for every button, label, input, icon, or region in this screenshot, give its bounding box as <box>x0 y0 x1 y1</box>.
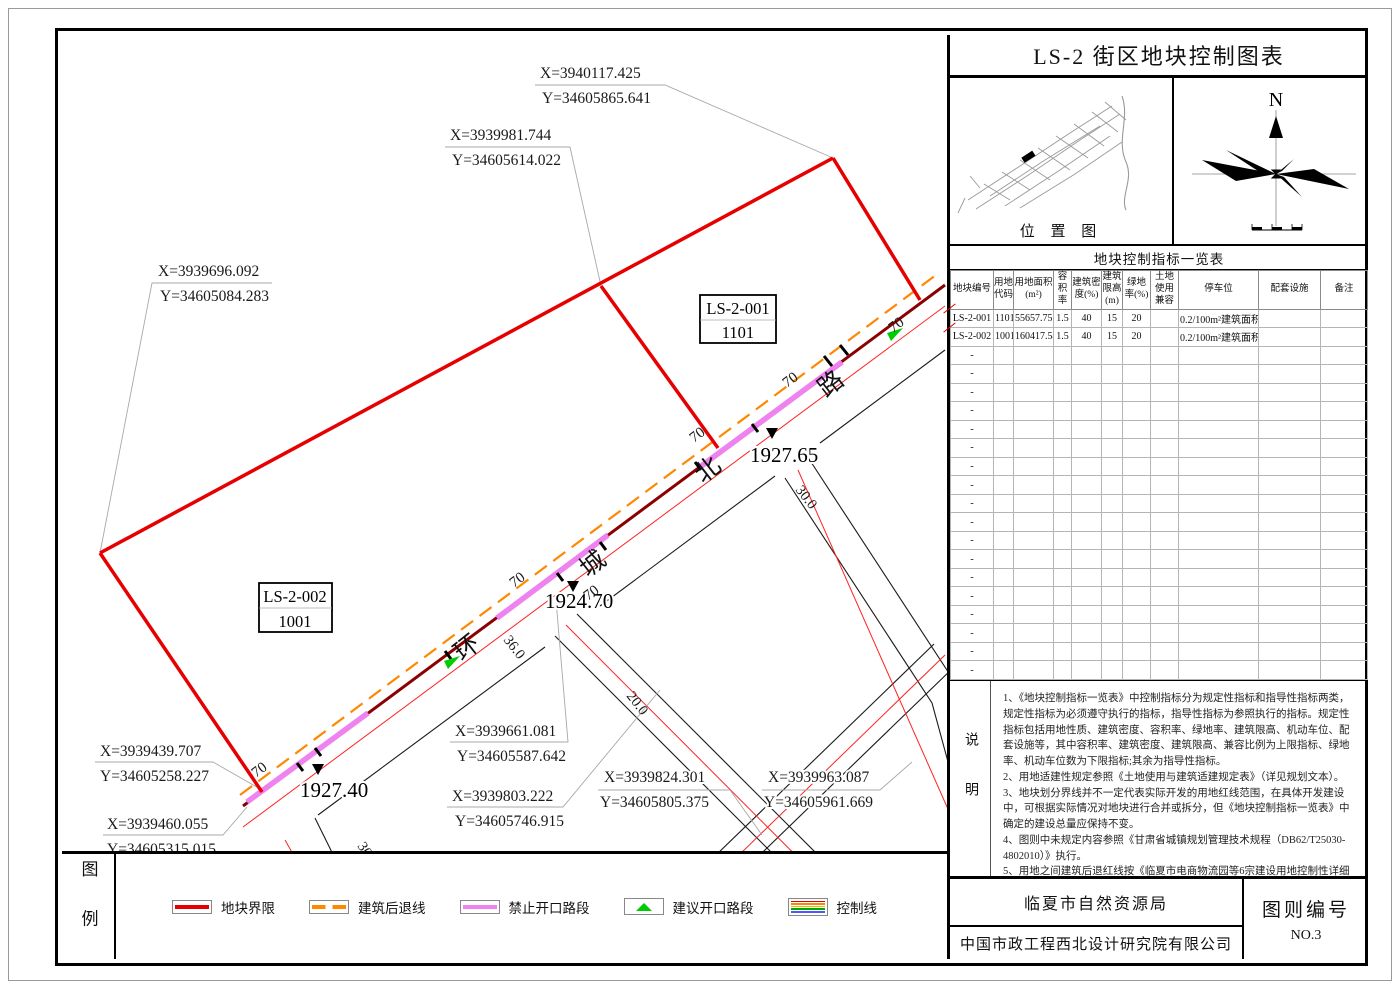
table-cell: - <box>951 457 994 476</box>
table-cell <box>994 531 1014 550</box>
table-cell <box>1102 439 1123 458</box>
table-row[interactable]: - <box>951 439 1368 458</box>
table-cell <box>1259 661 1321 680</box>
table-cell <box>994 457 1014 476</box>
table-cell <box>1072 346 1102 365</box>
table-cell <box>994 383 1014 402</box>
coordinate-label: Y=34605805.375 <box>600 794 709 811</box>
info-panel: LS-2 街区地块控制图表 <box>950 35 1368 959</box>
table-cell <box>1321 624 1368 643</box>
coordinate-label: X=3939981.744 <box>450 127 552 144</box>
table-cell <box>1072 550 1102 569</box>
table-header-cell: 停车位 <box>1179 271 1259 310</box>
table-cell <box>994 420 1014 439</box>
table-cell <box>1014 642 1054 661</box>
table-cell: LS-2-002 <box>951 328 994 347</box>
road-width-label: 30.0 <box>792 483 820 513</box>
coordinate-label: X=3939696.092 <box>158 263 259 280</box>
table-cell <box>1321 476 1368 495</box>
table-cell <box>1102 494 1123 513</box>
note-line: 4、图则中未规定内容参照《甘肃省城镇规划管理技术规程（DB62/T25030-4… <box>1003 833 1358 865</box>
table-row[interactable]: - <box>951 346 1368 365</box>
table-header-cell: 绿地率(%) <box>1123 271 1151 310</box>
table-cell: 1101 <box>994 309 1014 328</box>
coordinate-label: X=3939963.087 <box>768 769 870 786</box>
table-cell <box>1151 383 1179 402</box>
coordinate-label: Y=34605614.022 <box>452 152 561 169</box>
windrose-icon <box>1202 150 1349 197</box>
table-cell <box>1259 439 1321 458</box>
table-cell: 15 <box>1102 309 1123 328</box>
table-cell: LS-2-001 <box>951 309 994 328</box>
location-section: 位 置 图 N <box>950 78 1368 246</box>
table-cell <box>1014 494 1054 513</box>
legend-item-label: 禁止开口路段 <box>509 897 590 917</box>
table-cell <box>1179 661 1259 680</box>
notes-body: 1、《地块控制指标一览表》中控制指标分为规定性指标和指导性指标两类，规定性指标为… <box>991 681 1368 876</box>
table-cell: - <box>951 568 994 587</box>
parcel-boundaries <box>100 158 920 792</box>
table-cell <box>994 439 1014 458</box>
coordinate-label: Y=34605746.915 <box>455 813 564 830</box>
table-cell <box>1321 568 1368 587</box>
table-cell <box>1072 439 1102 458</box>
table-cell <box>1102 624 1123 643</box>
table-cell <box>1321 587 1368 606</box>
table-cell <box>1102 642 1123 661</box>
coordinate-label: Y=34605587.642 <box>457 748 566 765</box>
table-cell <box>1072 476 1102 495</box>
table-cell <box>1014 346 1054 365</box>
indicators-table-wrap: 地块编号用地代码用地面积(m²)容积率建筑密度(%)建筑限高(m)绿地率(%)土… <box>950 270 1368 681</box>
table-cell <box>1123 383 1151 402</box>
table-header-cell: 土地使用兼容 <box>1151 271 1179 310</box>
table-cell: - <box>951 605 994 624</box>
table-cell: - <box>951 476 994 495</box>
table-cell <box>1054 550 1072 569</box>
table-cell: - <box>951 642 994 661</box>
table-cell <box>994 494 1014 513</box>
table-row[interactable]: - <box>951 457 1368 476</box>
table-cell <box>1054 494 1072 513</box>
table-cell <box>1259 346 1321 365</box>
coordinate-label: Y=34605258.227 <box>100 768 209 785</box>
table-cell <box>1179 457 1259 476</box>
suggested-access-swatch-icon <box>624 898 664 915</box>
note-line: 3、地块划分界线并不一定代表实际开发的用地红线范围，在具体开发建设中，可根据实际… <box>1003 786 1358 833</box>
table-cell <box>1179 587 1259 606</box>
legend-item-label: 建议开口路段 <box>673 897 754 917</box>
table-cell <box>1259 402 1321 421</box>
table-cell: 1001 <box>994 328 1014 347</box>
table-cell: - <box>951 550 994 569</box>
coordinate-label: X=3939460.055 <box>107 816 209 833</box>
table-cell <box>1151 328 1179 347</box>
table-cell <box>1151 550 1179 569</box>
table-cell <box>994 402 1014 421</box>
table-cell <box>1151 661 1179 680</box>
table-cell <box>1014 439 1054 458</box>
table-cell <box>1321 383 1368 402</box>
table-cell <box>1259 309 1321 328</box>
table-cell <box>1054 568 1072 587</box>
legend-item-label: 建筑后退线 <box>358 897 426 917</box>
table-cell <box>1179 402 1259 421</box>
table-cell <box>1259 383 1321 402</box>
table-cell <box>1151 402 1179 421</box>
legend-item-suggested-access: 建议开口路段 <box>624 897 754 917</box>
table-row[interactable]: - <box>951 513 1368 532</box>
table-cell <box>1321 531 1368 550</box>
table-cell <box>1054 476 1072 495</box>
table-cell: - <box>951 587 994 606</box>
table-cell <box>1151 457 1179 476</box>
table-cell <box>1151 642 1179 661</box>
table-cell <box>1123 531 1151 550</box>
table-row[interactable]: - <box>951 365 1368 384</box>
table-cell <box>1321 550 1368 569</box>
table-cell <box>1179 476 1259 495</box>
table-cell <box>1123 624 1151 643</box>
table-cell <box>1321 642 1368 661</box>
table-cell <box>1321 513 1368 532</box>
table-cell <box>1123 587 1151 606</box>
table-cell: - <box>951 346 994 365</box>
table-row[interactable]: - <box>951 476 1368 495</box>
road-tick-marks <box>297 345 848 771</box>
table-cell: 20 <box>1123 328 1151 347</box>
table-cell <box>1072 420 1102 439</box>
sheet-frame: X=3940117.425 Y=34605865.641 X=3939981.7… <box>55 28 1368 966</box>
table-cell: 160417.54 <box>1014 328 1054 347</box>
table-cell <box>1179 642 1259 661</box>
table-cell <box>994 346 1014 365</box>
location-map-caption: 位 置 图 <box>950 220 1172 241</box>
north-label: N <box>1269 89 1283 111</box>
table-cell: - <box>951 494 994 513</box>
table-cell <box>1072 568 1102 587</box>
table-cell <box>1014 605 1054 624</box>
table-cell <box>1151 494 1179 513</box>
table-cell <box>1179 550 1259 569</box>
scale-bar <box>1252 224 1302 230</box>
table-cell <box>1151 439 1179 458</box>
table-cell <box>1123 457 1151 476</box>
coordinate-label: Y=34605084.283 <box>160 288 269 305</box>
table-cell: 55657.75 <box>1014 309 1054 328</box>
table-cell: - <box>951 513 994 532</box>
table-cell <box>1102 587 1123 606</box>
table-cell <box>1054 365 1072 384</box>
table-cell <box>994 605 1014 624</box>
table-cell <box>1072 365 1102 384</box>
table-cell <box>1321 328 1368 347</box>
road-name-char: 城 <box>575 546 611 583</box>
table-cell <box>1014 383 1054 402</box>
table-cell <box>1321 439 1368 458</box>
table-cell <box>994 513 1014 532</box>
table-cell <box>1014 457 1054 476</box>
notes-section: 说明 1、《地块控制指标一览表》中控制指标分为规定性指标和指导性指标两类，规定性… <box>950 681 1368 879</box>
table-cell <box>1014 365 1054 384</box>
table-cell <box>1014 402 1054 421</box>
table-cell <box>1123 513 1151 532</box>
table-cell <box>1321 309 1368 328</box>
title-block-left: 临夏市自然资源局 中国市政工程西北设计研究院有限公司 <box>950 879 1244 959</box>
table-cell: - <box>951 365 994 384</box>
table-cell: 0.2/100m²建筑面积 <box>1179 309 1259 328</box>
coordinate-label: X=3939803.222 <box>452 788 553 805</box>
table-cell: - <box>951 624 994 643</box>
table-cell <box>1321 457 1368 476</box>
table-cell <box>994 624 1014 643</box>
table-row[interactable]: - <box>951 642 1368 661</box>
sheet-title: LS-2 街区地块控制图表 <box>950 35 1368 78</box>
agency-name: 临夏市自然资源局 <box>950 879 1242 927</box>
table-header-row: 地块编号用地代码用地面积(m²)容积率建筑密度(%)建筑限高(m)绿地率(%)土… <box>951 271 1368 310</box>
table-header-cell: 建筑限高(m) <box>1102 271 1123 310</box>
table-cell <box>1151 568 1179 587</box>
table-cell <box>1102 402 1123 421</box>
table-cell <box>1321 494 1368 513</box>
table-cell <box>1151 365 1179 384</box>
table-cell <box>1014 661 1054 680</box>
table-cell <box>1179 531 1259 550</box>
table-cell: 0.2/100m²建筑面积 <box>1179 328 1259 347</box>
location-map-drawing <box>950 78 1170 216</box>
table-row[interactable]: - <box>951 550 1368 569</box>
table-cell <box>1014 420 1054 439</box>
table-cell <box>994 661 1014 680</box>
table-cell <box>1123 365 1151 384</box>
table-cell <box>1179 513 1259 532</box>
table-cell <box>1054 624 1072 643</box>
table-cell <box>1014 476 1054 495</box>
table-cell: 40 <box>1072 309 1102 328</box>
parcel-id: LS-2-001 <box>706 299 769 318</box>
table-cell <box>1054 383 1072 402</box>
table-cell <box>1259 476 1321 495</box>
table-cell <box>1151 587 1179 606</box>
table-cell <box>1102 531 1123 550</box>
table-cell <box>1072 494 1102 513</box>
table-row[interactable]: - <box>951 402 1368 421</box>
table-cell <box>1072 624 1102 643</box>
table-row[interactable]: - <box>951 420 1368 439</box>
road-width-label: 30.0 <box>354 839 382 854</box>
table-cell: - <box>951 661 994 680</box>
table-cell <box>1151 346 1179 365</box>
table-row[interactable]: - <box>951 383 1368 402</box>
parcel-boundary-swatch-icon <box>172 900 212 914</box>
table-cell <box>1179 605 1259 624</box>
table-cell <box>1072 402 1102 421</box>
river-line <box>1122 96 1129 210</box>
table-cell <box>1259 457 1321 476</box>
note-line: 1、《地块控制指标一览表》中控制指标分为规定性指标和指导性指标两类，规定性指标为… <box>1003 691 1358 770</box>
table-cell <box>1072 383 1102 402</box>
table-cell: - <box>951 402 994 421</box>
note-line: 2、用地适建性规定参照《土地使用与建筑适建规定表》（详见规划文本）。 <box>1003 770 1358 786</box>
table-cell: 20 <box>1123 309 1151 328</box>
table-cell <box>1179 494 1259 513</box>
legend-item-no-access: 禁止开口路段 <box>460 897 590 917</box>
table-cell <box>1072 531 1102 550</box>
table-cell <box>1123 550 1151 569</box>
table-cell <box>1054 420 1072 439</box>
table-cell <box>1259 513 1321 532</box>
table-cell <box>1151 476 1179 495</box>
table-cell <box>1123 402 1151 421</box>
legend-item-parcel-boundary: 地块界限 <box>172 897 275 917</box>
table-cell <box>1179 383 1259 402</box>
table-cell <box>1259 587 1321 606</box>
road-name-char: 北 <box>690 452 726 489</box>
legend-item-setback-line: 建筑后退线 <box>309 897 426 917</box>
table-row[interactable]: - <box>951 494 1368 513</box>
setback-width-label: 70 <box>507 569 529 591</box>
road-name: 环 城 北 路 <box>449 365 849 666</box>
table-cell <box>1014 550 1054 569</box>
table-cell <box>1102 383 1123 402</box>
road-name-char: 路 <box>812 365 849 402</box>
road-width-label: 20.0 <box>623 689 651 719</box>
table-cell <box>1123 346 1151 365</box>
table-cell <box>1151 513 1179 532</box>
road-width-label: 36.0 <box>500 633 528 663</box>
table-cell <box>1072 457 1102 476</box>
table-cell <box>1179 346 1259 365</box>
table-cell <box>1102 457 1123 476</box>
table-cell <box>994 365 1014 384</box>
table-row[interactable]: - <box>951 661 1368 680</box>
elevation-label: 1927.65 <box>750 443 818 467</box>
parcel-code: 1001 <box>279 612 312 631</box>
plan-sheet: X=3940117.425 Y=34605865.641 X=3939981.7… <box>0 0 1400 989</box>
table-cell <box>1072 642 1102 661</box>
table-cell <box>1321 661 1368 680</box>
table-row[interactable]: - <box>951 605 1368 624</box>
table-cell <box>1321 420 1368 439</box>
table-cell: 15 <box>1102 328 1123 347</box>
table-cell <box>994 568 1014 587</box>
table-cell <box>1151 531 1179 550</box>
table-cell <box>1054 439 1072 458</box>
indicators-table[interactable]: 地块编号用地代码用地面积(m²)容积率建筑密度(%)建筑限高(m)绿地率(%)土… <box>950 270 1368 680</box>
table-row[interactable]: LS-2-0021001160417.541.54015200.2/100m²建… <box>951 328 1368 347</box>
table-cell <box>1102 476 1123 495</box>
building-setback-line <box>240 272 940 795</box>
coordinate-label: X=3939661.081 <box>455 723 556 740</box>
table-cell <box>1123 439 1151 458</box>
elevation-label: 1924.70 <box>545 589 613 613</box>
table-cell <box>1072 605 1102 624</box>
elevation-label: 1927.40 <box>300 778 368 802</box>
table-row[interactable]: - <box>951 531 1368 550</box>
coordinate-label: Y=34605961.669 <box>764 794 873 811</box>
table-cell <box>1014 568 1054 587</box>
table-cell: 40 <box>1072 328 1102 347</box>
table-cell <box>994 550 1014 569</box>
coordinate-label: X=3939824.301 <box>604 769 705 786</box>
table-row[interactable]: - <box>951 568 1368 587</box>
table-cell <box>1014 587 1054 606</box>
table-cell <box>1123 494 1151 513</box>
table-cell <box>1179 365 1259 384</box>
parcel-code: 1101 <box>722 323 754 342</box>
coordinate-label: Y=34605865.641 <box>542 90 651 107</box>
table-cell <box>1179 439 1259 458</box>
table-cell <box>1102 568 1123 587</box>
table-cell <box>1072 661 1102 680</box>
sheet-number: NO.3 <box>1291 928 1322 944</box>
table-header-cell: 配套设施 <box>1259 271 1321 310</box>
table-cell <box>1321 365 1368 384</box>
table-cell <box>1321 605 1368 624</box>
table-cell <box>1072 587 1102 606</box>
table-cell <box>1102 420 1123 439</box>
table-cell <box>1151 309 1179 328</box>
table-cell <box>1054 531 1072 550</box>
table-cell <box>1123 420 1151 439</box>
legend-item-label: 控制线 <box>837 897 878 917</box>
table-cell <box>994 642 1014 661</box>
table-row[interactable]: - <box>951 587 1368 606</box>
table-cell <box>1259 624 1321 643</box>
coordinate-label: X=3940117.425 <box>540 65 641 82</box>
table-header-cell: 地块编号 <box>951 271 994 310</box>
notes-title: 说明 <box>950 681 991 876</box>
table-cell <box>1054 513 1072 532</box>
table-row[interactable]: - <box>951 624 1368 643</box>
table-cell <box>1321 402 1368 421</box>
table-cell <box>1102 513 1123 532</box>
parcel-control-map[interactable]: X=3940117.425 Y=34605865.641 X=3939981.7… <box>62 35 947 854</box>
table-cell <box>1054 605 1072 624</box>
table-header-cell: 用地代码 <box>994 271 1014 310</box>
table-cell <box>1321 346 1368 365</box>
title-block: 临夏市自然资源局 中国市政工程西北设计研究院有限公司 图则编号 NO.3 <box>950 879 1368 959</box>
sheet-inner: X=3940117.425 Y=34605865.641 X=3939981.7… <box>62 35 1361 959</box>
table-cell <box>1259 420 1321 439</box>
table-cell: - <box>951 531 994 550</box>
table-cell <box>1123 568 1151 587</box>
table-cell <box>1102 605 1123 624</box>
table-cell: 1.5 <box>1054 328 1072 347</box>
table-cell <box>1123 661 1151 680</box>
setback-line-swatch-icon <box>309 900 349 914</box>
table-cell <box>1072 513 1102 532</box>
table-header-cell: 用地面积(m²) <box>1014 271 1054 310</box>
table-header-cell: 建筑密度(%) <box>1072 271 1102 310</box>
table-row[interactable]: LS-2-001110155657.751.54015200.2/100m²建筑… <box>951 309 1368 328</box>
legend-item-label: 地块界限 <box>221 897 275 917</box>
location-map: 位 置 图 <box>950 78 1174 244</box>
company-name: 中国市政工程西北设计研究院有限公司 <box>950 927 1242 959</box>
table-cell <box>1259 531 1321 550</box>
table-cell <box>1014 624 1054 643</box>
no-access-swatch-icon <box>460 900 500 914</box>
table-cell <box>1259 494 1321 513</box>
table-cell <box>1014 513 1054 532</box>
indicators-table-title: 地块控制指标一览表 <box>950 246 1368 270</box>
table-header-cell: 容积率 <box>1054 271 1072 310</box>
table-cell <box>1179 624 1259 643</box>
north-arrow-icon <box>1269 116 1283 138</box>
parcel-id: LS-2-002 <box>263 587 326 606</box>
table-cell <box>1179 568 1259 587</box>
table-cell <box>1054 642 1072 661</box>
